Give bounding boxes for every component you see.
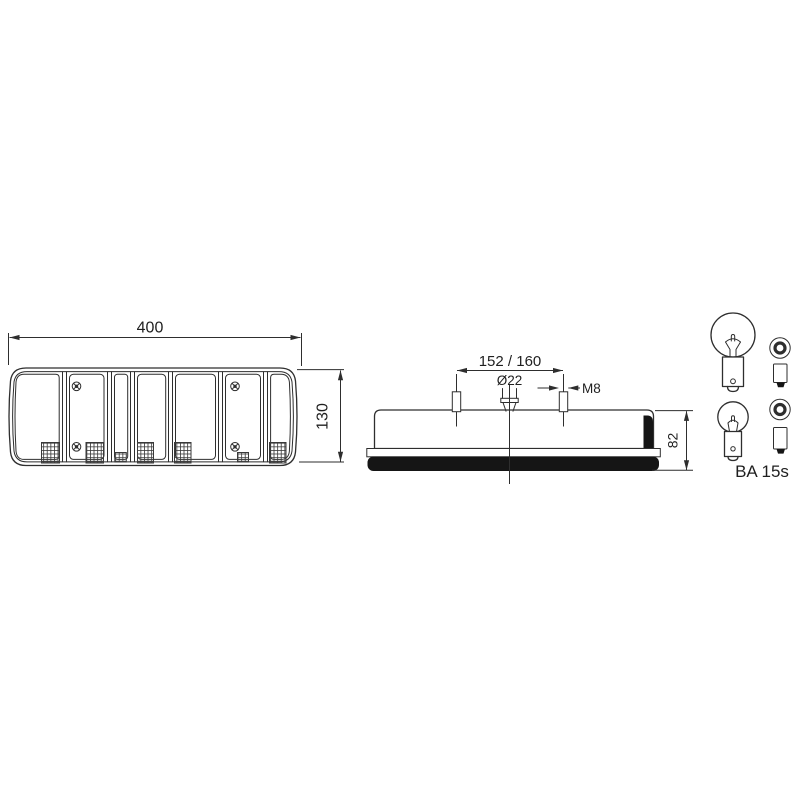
dimension-front-height: 130 bbox=[297, 370, 344, 462]
screw-icon bbox=[231, 443, 240, 452]
screw-icon bbox=[72, 382, 81, 391]
lens-segment-3 bbox=[115, 374, 128, 459]
reflector-grid bbox=[238, 453, 249, 463]
front-view: 400 130 bbox=[9, 320, 345, 466]
small-bulb-icon bbox=[718, 402, 748, 461]
stud-spacing-label: 152 / 160 bbox=[479, 353, 542, 370]
front-width-label: 400 bbox=[137, 320, 164, 337]
socket-top-view-icon bbox=[770, 338, 790, 358]
reflector-grid bbox=[138, 443, 154, 464]
stud-left bbox=[452, 392, 460, 412]
connector-diameter-label: Ø22 bbox=[497, 373, 523, 388]
socket-side-view-icon bbox=[774, 364, 788, 387]
bulb-socket-label: BA 15s bbox=[735, 462, 789, 481]
front-height-label: 130 bbox=[315, 403, 332, 430]
housing-end-cap bbox=[644, 416, 654, 449]
thread-label: M8 bbox=[582, 381, 601, 396]
large-bulb-icon bbox=[711, 313, 755, 392]
dimension-stud-spacing: 152 / 160 bbox=[457, 353, 563, 373]
mounting-flange bbox=[367, 449, 661, 457]
socket-top-view-icon bbox=[770, 399, 790, 419]
dimension-thread: M8 bbox=[538, 381, 601, 396]
side-height-label: 82 bbox=[665, 433, 681, 449]
stud-right bbox=[559, 392, 567, 412]
rubber-seal bbox=[368, 457, 660, 472]
screw-icons bbox=[72, 382, 239, 451]
reflector-grid bbox=[42, 443, 60, 464]
bulb-set: BA 15s bbox=[711, 313, 790, 481]
screw-icon bbox=[72, 443, 81, 452]
screw-icon bbox=[231, 382, 240, 391]
technical-drawing-canvas: 400 130 bbox=[0, 0, 800, 800]
reflector-grid bbox=[86, 443, 104, 464]
lamp-technical-drawing: 400 130 bbox=[0, 0, 800, 800]
dimension-front-width: 400 bbox=[9, 320, 302, 367]
housing-body bbox=[375, 410, 654, 449]
side-view: 152 / 160 Ø22 M8 82 bbox=[367, 353, 693, 484]
reflector-grid bbox=[115, 453, 127, 463]
reflector-grid bbox=[175, 443, 192, 464]
reflector-grid bbox=[270, 443, 287, 464]
socket-side-view-icon bbox=[774, 428, 788, 454]
